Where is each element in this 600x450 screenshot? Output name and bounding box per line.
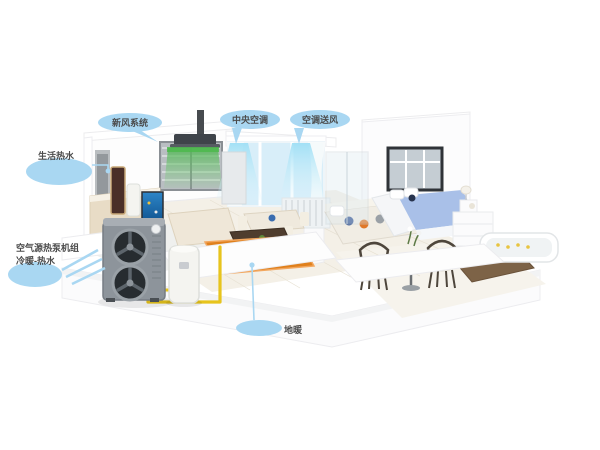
glass-cabinet (222, 152, 246, 204)
label-fresh-air: 新风系统 (98, 113, 162, 132)
label-hot-water-text: 生活热水 (38, 150, 74, 162)
label-floor-heating-text: 地暖 (284, 324, 302, 336)
fresh-air-unit (164, 110, 222, 188)
bedroom-window (388, 148, 442, 190)
dresser-decor (469, 203, 475, 209)
water-softener (127, 184, 140, 216)
brand-badge (152, 225, 161, 234)
scene-canvas: 新风系统 中央空调 空调送风 生活热水 空气源热泵机组 冷暖-热水 地暖 (0, 0, 600, 450)
label-hot-water-bubble (26, 158, 92, 185)
bathroom-shower (326, 152, 368, 224)
hot-water-tank-indoor (111, 167, 125, 214)
tank-display (179, 262, 189, 269)
heat-pump-outdoor-unit (98, 218, 174, 308)
table-decor (269, 215, 276, 222)
label-ac-supply: 空调送风 (290, 110, 350, 129)
label-fresh-air-text: 新风系统 (112, 116, 148, 129)
green-airflow (164, 148, 222, 188)
label-floor-heating-bubble (236, 320, 282, 336)
label-ac-supply-text: 空调送风 (302, 113, 338, 126)
fan-icon (113, 230, 147, 264)
hot-water-pointer-dot (106, 169, 111, 174)
label-central-ac-text: 中央空调 (232, 113, 268, 126)
label-central-ac: 中央空调 (220, 110, 280, 129)
floor-heating-pointer-dot (249, 262, 254, 267)
fresh-air-exhaust-pipe (197, 110, 204, 138)
fan-icon (113, 266, 147, 300)
buffer-tank (166, 246, 202, 308)
pillow-dark (409, 195, 416, 202)
label-heat-pump-line2: 冷暖-热水 (16, 255, 55, 267)
label-heat-pump-line1: 空气源热泵机组 (16, 242, 79, 254)
house-cutaway-illustration (0, 0, 600, 450)
